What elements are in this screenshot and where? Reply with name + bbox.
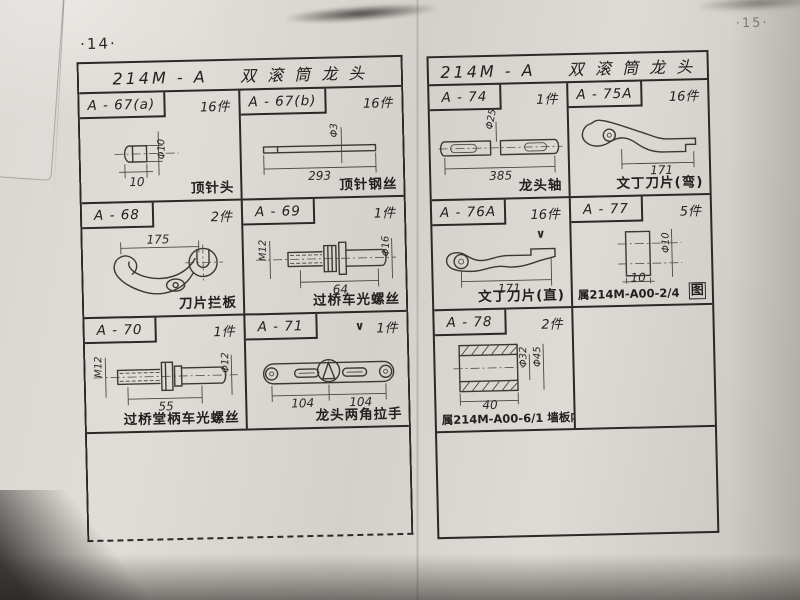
quantity: 16件: [200, 96, 230, 116]
quantity: 1件: [374, 202, 396, 221]
svg-text:10: 10: [630, 270, 646, 284]
svg-text:104: 104: [291, 396, 314, 411]
quantity: 2件: [211, 206, 233, 225]
quantity: 16件: [530, 203, 560, 223]
table-row: A - 78 2件 Φ32 Φ45 40: [434, 305, 715, 433]
cell-a77: A - 77 5件 Φ10 10 属214M-A00-2/4 图: [571, 195, 712, 306]
svg-text:175: 175: [146, 232, 169, 247]
svg-text:Φ3: Φ3: [329, 123, 340, 137]
table-row: A - 74 1件 Φ25 385 龙头轴: [429, 80, 710, 201]
part-number: A - 67(a): [79, 91, 165, 120]
parts-table-page14: 214M - A 双 滚 筒 龙 头 A - 67(a) 16件 Φ10 10: [77, 55, 414, 542]
cell-a69: A - 69 1件 M12 Φ16 64: [243, 197, 407, 314]
svg-text:Φ32: Φ32: [518, 346, 529, 367]
part-name: 文丁刀片(弯): [616, 170, 703, 192]
quantity: 5件: [680, 200, 702, 219]
belongs-note: 属214M-A00-2/4: [578, 285, 680, 303]
part-name: 顶针头: [191, 176, 235, 197]
svg-text:Φ10: Φ10: [661, 232, 672, 253]
cell-a74: A - 74 1件 Φ25 385 龙头轴: [429, 83, 571, 199]
table-row: A - 67(a) 16件 Φ10 10 顶针头 A - 67(b): [79, 87, 403, 204]
table-row: A - 70 1件 M12 Φ12 55: [84, 312, 409, 434]
part-number: A - 78: [434, 308, 507, 336]
svg-text:Φ16: Φ16: [381, 236, 392, 257]
pen-checkmark: ∨: [355, 319, 365, 333]
svg-text:293: 293: [308, 169, 331, 184]
svg-text:Φ10: Φ10: [156, 139, 167, 160]
cell-a75a: A - 75A 16件 171 文丁刀片(弯): [568, 80, 710, 196]
part-name: 过桥堂柄车光螺丝: [123, 406, 239, 429]
svg-text:M12: M12: [93, 356, 104, 378]
part-number: A - 77: [571, 195, 644, 223]
parts-table-page15: 214M - A 双 滚 筒 龙 头 A - 74 1件 Φ25: [426, 50, 719, 539]
quantity: 1件: [213, 321, 235, 340]
part-name: 过桥车光螺丝: [313, 287, 400, 309]
figure-mark: 图: [689, 282, 706, 299]
cell-a67a: A - 67(a) 16件 Φ10 10 顶针头: [79, 91, 242, 203]
svg-text:M12: M12: [258, 240, 269, 262]
cell-a76a: A - 76A 16件 ∨ 171 文丁刀片(直): [432, 198, 573, 309]
part-number: A - 76A: [432, 198, 507, 226]
svg-text:385: 385: [489, 168, 512, 183]
table-row: A - 68 2件 175 刀片拦板: [82, 197, 407, 319]
cell-a70: A - 70 1件 M12 Φ12 55: [84, 316, 248, 433]
cell-a68: A - 68 2件 175 刀片拦板: [82, 201, 246, 318]
bottom-left-shadow: [0, 490, 160, 600]
page-number-right: ·15·: [736, 16, 769, 32]
quantity: 16件: [669, 85, 699, 105]
part-name: 龙头两角拉手: [315, 402, 402, 424]
svg-text:Φ45: Φ45: [532, 346, 543, 367]
quantity: 1件: [536, 88, 558, 107]
part-number: A - 69: [243, 197, 316, 226]
svg-text:Φ12: Φ12: [220, 352, 231, 373]
cell-a78: A - 78 2件 Φ32 Φ45 40: [434, 308, 576, 431]
part-name: 刀片拦板: [179, 291, 237, 312]
cell-a71: A - 71 1件 ∨ 104: [245, 312, 409, 429]
page-number-left: ·14·: [80, 34, 117, 53]
svg-text:10: 10: [129, 175, 145, 189]
drawing-small-roller: Φ10 10: [571, 222, 709, 287]
part-number: A - 74: [429, 83, 502, 111]
part-name: 龙头轴: [519, 173, 563, 194]
cell-a67b: A - 67(b) 16件 Φ3 293 顶针钢丝: [240, 87, 403, 199]
drawing-inner-sleeve: Φ32 Φ45 40: [435, 335, 574, 412]
part-number: A - 75A: [568, 80, 643, 108]
part-number: A - 71: [245, 312, 318, 341]
svg-text:Φ25: Φ25: [484, 108, 499, 130]
part-number: A - 70: [84, 316, 157, 345]
quantity: 1件: [376, 317, 398, 336]
part-name: 文丁刀片(直): [478, 283, 565, 305]
table-row: A - 76A 16件 ∨ 171 文丁刀片(直) A - 77 5件: [432, 195, 712, 311]
part-name: 顶针钢丝: [339, 172, 397, 193]
cell-empty: [573, 305, 715, 428]
part-number: A - 67(b): [240, 87, 327, 116]
belongs-note: 属214M-A00-6/1 墙板内套筒: [442, 408, 576, 428]
part-number: A - 68: [82, 201, 155, 230]
quantity: 2件: [541, 313, 563, 332]
quantity: 16件: [363, 92, 393, 112]
scanned-page: ·14· ·15· 214M - A 双 滚 筒 龙 头 A - 67(a) 1…: [0, 0, 800, 600]
